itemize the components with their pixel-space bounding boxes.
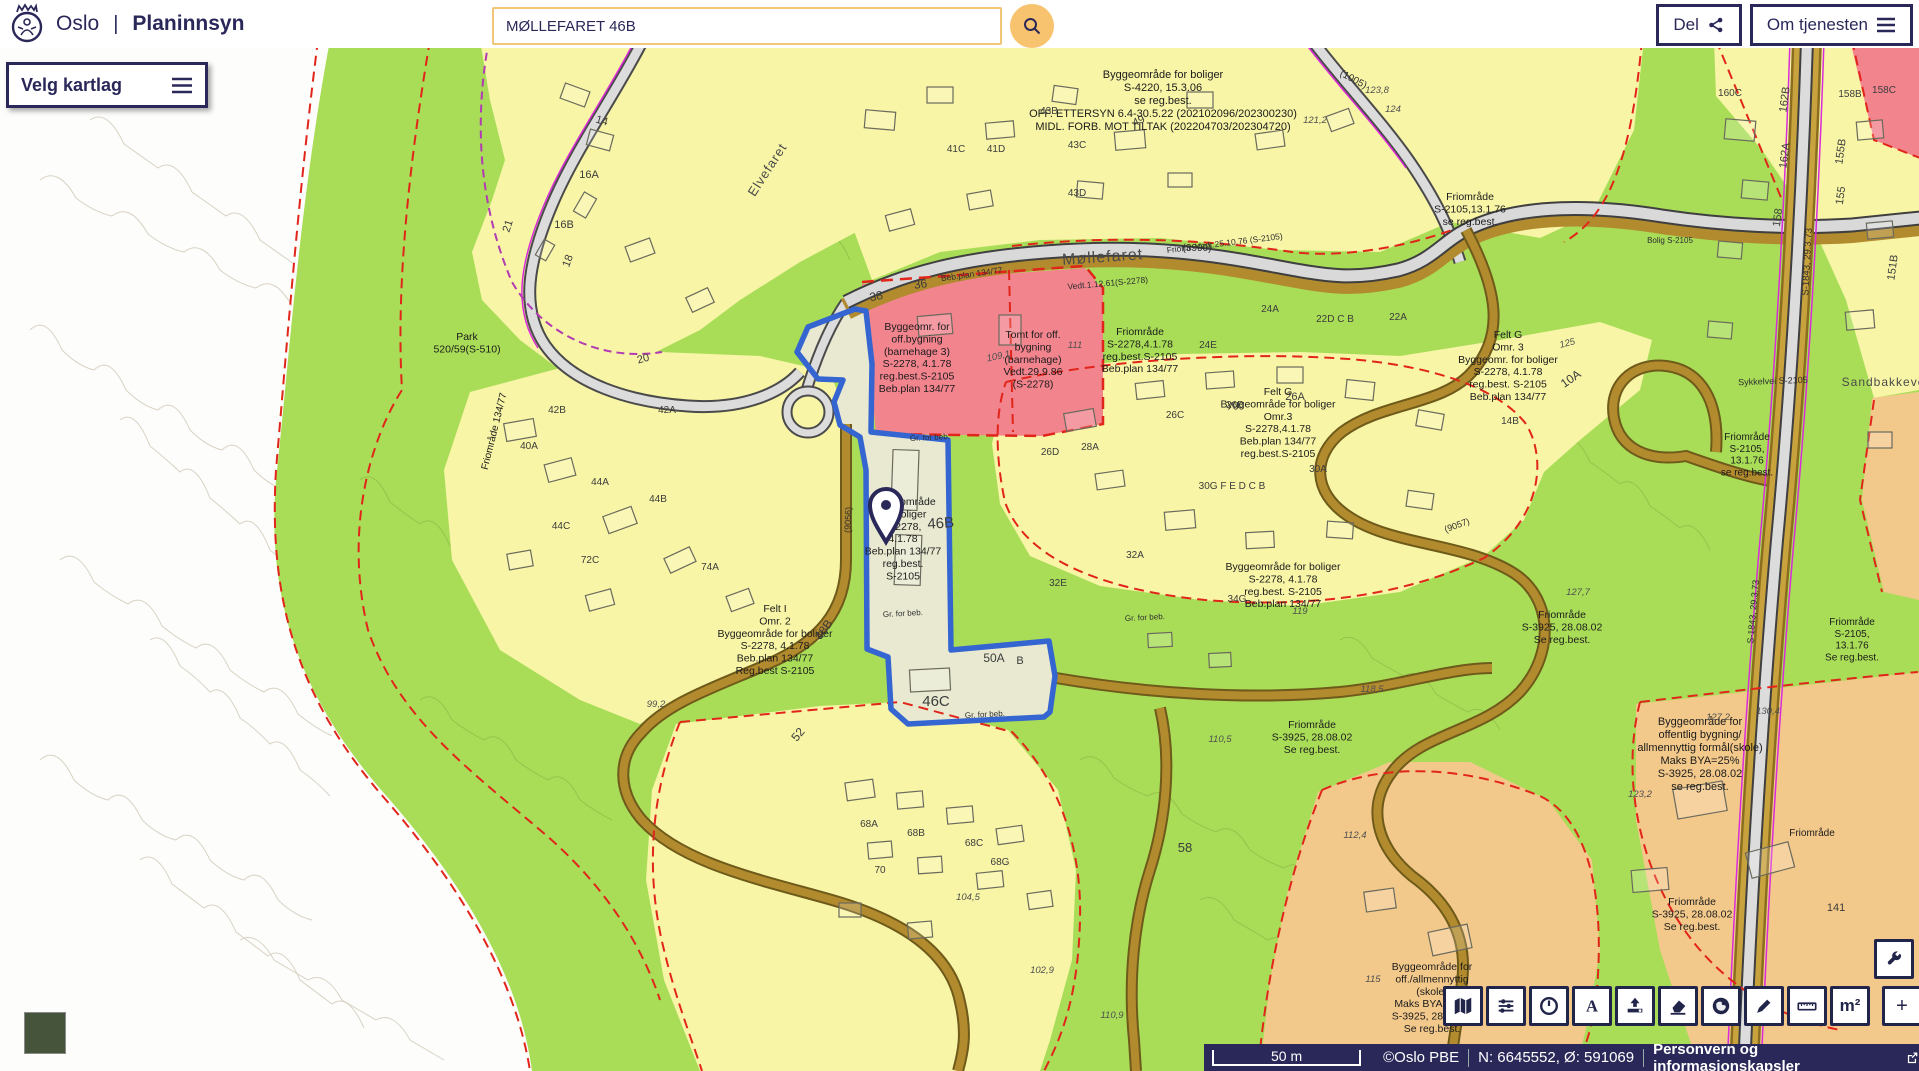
status-bar: 50 m ©Oslo PBE N: 6645552, Ø: 591069 Per… (1204, 1044, 1919, 1071)
map-label: 30A (1309, 464, 1327, 475)
sliders-icon (1495, 995, 1517, 1017)
privacy-link[interactable]: Personvern og informasjonskapsler (1653, 1041, 1919, 1071)
map-label: 123,2 (1628, 789, 1652, 800)
map-label: 118,5 (1360, 684, 1384, 695)
search-input[interactable] (492, 7, 1002, 45)
map-label: 43D (1068, 188, 1086, 199)
privacy-label: Personvern og informasjonskapsler (1653, 1041, 1900, 1071)
scale-label: 50 m (1271, 1048, 1302, 1064)
share-button[interactable]: Del (1656, 4, 1742, 46)
map-label: 104,5 (956, 892, 980, 903)
app-header: Oslo | Planinnsyn Del Om tjenesten (0, 0, 1919, 48)
map-label: 121,2 (1303, 115, 1327, 126)
map-label: 119 (1292, 606, 1308, 617)
map-label: 102,9 (1030, 965, 1054, 976)
map-label: 32E (1049, 578, 1067, 589)
map-label: B (1016, 655, 1023, 667)
map-label: 68B (907, 828, 925, 839)
toolbar-export-button[interactable] (1615, 986, 1655, 1026)
toolbar-zoom-in-button[interactable]: + (1882, 986, 1919, 1026)
clock-icon (1538, 995, 1560, 1017)
map-label: 30G F E D C B (1199, 481, 1266, 492)
toolbar-measure-length-button[interactable] (1787, 986, 1827, 1026)
map-label: Byggeomr. foroff.bygning(barnehage 3)S-2… (879, 321, 956, 395)
toolbar-text-tool-button[interactable]: A (1572, 986, 1612, 1026)
toolbar-layer-filter-button[interactable] (1486, 986, 1526, 1026)
map-label: Friområde (1789, 827, 1835, 839)
map-label: 130,4 (1756, 706, 1780, 717)
globe-icon (1710, 995, 1732, 1017)
map-label: 160C (1718, 88, 1742, 99)
map-label: Sandbakkeveien (1842, 375, 1919, 389)
map-label: 26C (1166, 410, 1184, 421)
map-label: 36 (913, 276, 928, 292)
map-label: 115 (1365, 974, 1381, 985)
map-label: 24E (1199, 340, 1217, 351)
toolbar-eraser-button[interactable] (1658, 986, 1698, 1026)
toolbar-history-button[interactable] (1529, 986, 1569, 1026)
svg-text:A: A (1586, 997, 1598, 1016)
map-label: 22A (1389, 312, 1407, 323)
share-icon (1707, 16, 1725, 34)
map-label: 158C (1872, 85, 1896, 96)
map-label: 26A (1285, 391, 1305, 403)
layers-button-label: Velg kartlag (21, 75, 122, 96)
ruler-icon (1795, 995, 1819, 1017)
map-label: 16A (579, 169, 599, 181)
statusbar-divider (1468, 1049, 1469, 1067)
coordinates-readout: N: 6645552, Ø: 591069 (1478, 1049, 1634, 1066)
map-label: Bolig S-2105 (1647, 236, 1693, 245)
statusbar-divider (1643, 1049, 1644, 1067)
map-label: 124 (1385, 104, 1401, 115)
map-label: 123,8 (1365, 85, 1389, 96)
map-label: 42A (658, 405, 676, 416)
map-label: 112,4 (1343, 830, 1366, 841)
page-title: Planinnsyn (132, 12, 244, 36)
map-label: 155 (1834, 186, 1848, 206)
planinnsyn-app: { "header": { "logo": "oslo-coat-of-arms… (0, 0, 1919, 1071)
map-label: 127,7 (1566, 587, 1590, 598)
map-label: 99,2 (647, 699, 666, 710)
map-label: 68A (860, 819, 878, 830)
toolbar-globe-button[interactable] (1701, 986, 1741, 1026)
map-label: 24A (1261, 304, 1279, 315)
about-label: Om tjenesten (1767, 15, 1868, 35)
map-label: 32A (1126, 550, 1144, 561)
map-label: 111 (1068, 340, 1082, 351)
wrench-icon (1884, 949, 1904, 969)
letter-a-icon: A (1581, 995, 1603, 1017)
map-icon (1452, 995, 1474, 1017)
search-bar (492, 4, 1054, 48)
toolbar-draw-button[interactable] (1744, 986, 1784, 1026)
header-actions: Del Om tjenesten (1656, 4, 1913, 46)
map-label: 42B (548, 405, 566, 416)
map-label: 110,9 (1100, 1010, 1124, 1021)
map-label: 26D (1041, 447, 1059, 458)
map-toolbar: Am²+− (1443, 986, 1919, 1026)
pencil-icon (1753, 995, 1775, 1017)
attribution: ©Oslo PBE (1383, 1049, 1459, 1066)
map-label: 26B (1226, 400, 1244, 411)
map-label: 44C (552, 521, 570, 532)
toolbar-measure-area-button[interactable]: m² (1830, 986, 1870, 1026)
oslo-logo-icon (8, 3, 46, 45)
basemap-thumbnail[interactable] (24, 1012, 66, 1054)
map-label: 22D C B (1316, 314, 1354, 325)
share-label: Del (1673, 15, 1699, 35)
map-label: 46B (927, 514, 955, 533)
city-name: Oslo (56, 12, 99, 36)
map-label: 70 (874, 865, 886, 876)
map-label: 127,2 (1706, 712, 1730, 723)
map-label: 16B (554, 219, 574, 231)
map-label: 44A (591, 477, 609, 488)
map-label: 72C (581, 555, 599, 566)
map-label: 58 (1178, 840, 1192, 855)
map-label: 74A (701, 562, 719, 573)
map-label: 68G (991, 857, 1010, 868)
map-label: (9056) (843, 507, 854, 533)
external-link-icon (1906, 1051, 1919, 1064)
map-label: 28A (1081, 442, 1099, 453)
scale-bar: 50 m (1212, 1050, 1361, 1066)
map-label: (3990) (1183, 243, 1212, 254)
about-service-button[interactable]: Om tjenesten (1750, 4, 1913, 46)
map-label: 158 (1771, 208, 1785, 228)
brand-divider: | (113, 13, 118, 36)
map-label: 14B (1501, 416, 1519, 427)
select-map-layers-button[interactable]: Velg kartlag (6, 62, 208, 108)
eraser-icon (1667, 995, 1689, 1017)
map-label: 141 (1827, 902, 1845, 914)
toolbar-settings-button[interactable] (1874, 939, 1914, 979)
map-label: 158B (1838, 89, 1862, 100)
search-icon (1021, 15, 1043, 37)
plus-icon: + (1896, 995, 1908, 1018)
map-canvas[interactable]: Byggeområde for boligerS-4220, 15.3.06se… (0, 0, 1919, 1071)
hamburger-layers-icon (171, 77, 193, 94)
map-label: 50A (983, 651, 1004, 665)
search-button[interactable] (1010, 4, 1054, 48)
map-label: 68C (965, 838, 983, 849)
map-label: 34G (1228, 594, 1247, 605)
hamburger-menu-icon (1876, 17, 1896, 33)
upload-icon (1624, 995, 1646, 1017)
map-label: 41D (987, 144, 1005, 155)
map-label: 40A (520, 441, 538, 452)
map-label: 44B (649, 494, 667, 505)
map-label: 46C (922, 693, 950, 710)
map-label: 110,5 (1208, 734, 1232, 745)
brand: Oslo | Planinnsyn (0, 3, 244, 45)
map-label: 41C (947, 144, 965, 155)
toolbar-basemap-button[interactable] (1443, 986, 1483, 1026)
map-label: 43C (1068, 140, 1086, 151)
map-label: 43B (1040, 106, 1058, 117)
m2-icon: m² (1840, 996, 1861, 1016)
